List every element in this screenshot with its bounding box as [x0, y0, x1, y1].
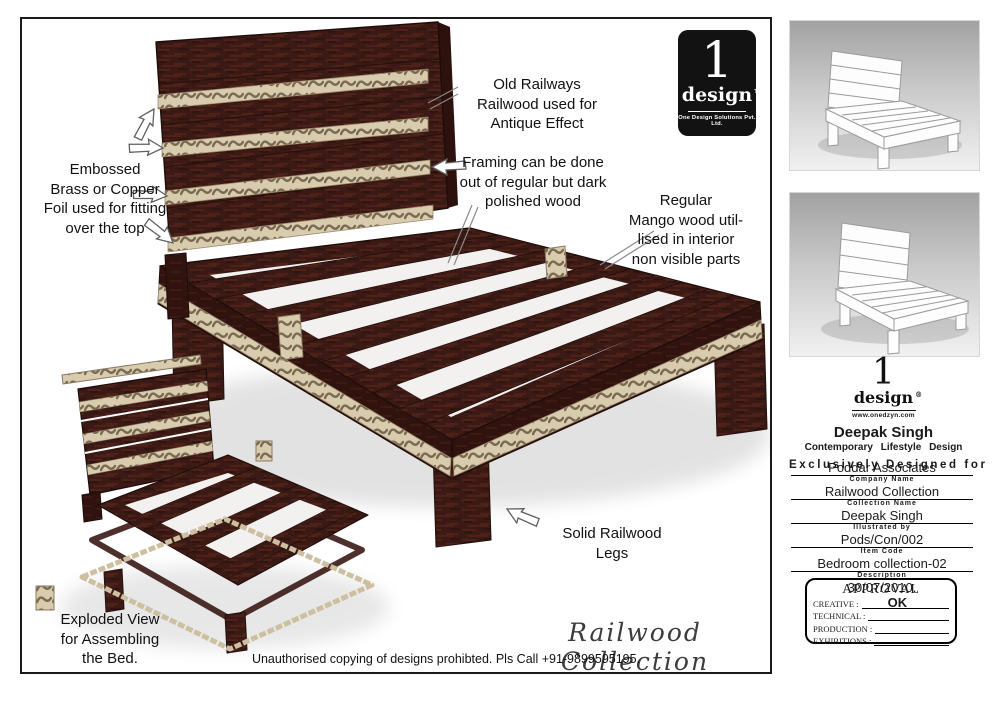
designer-name: Deepak Singh	[789, 424, 978, 441]
designer-tagline: Contemporary Lifestyle Design	[789, 442, 978, 453]
field-value: Pods/Con/002	[791, 533, 973, 548]
approval-row-technical: TECHNICAL :	[813, 611, 949, 621]
signature-line	[874, 636, 949, 646]
logo-divider	[688, 111, 746, 112]
copyright-disclaimer: Unauthorised copying of designs prohibte…	[226, 652, 666, 666]
signature-line	[868, 611, 949, 621]
approval-title: APPROVAL	[813, 581, 949, 596]
annotation-embossed-foil: Embossed Brass or Copper Foil used for f…	[15, 160, 195, 238]
logo-company-line: One Design Solutions Pvt. Ltd.	[678, 115, 756, 127]
annotation-framing: Framing can be done out of regular but d…	[423, 153, 643, 212]
approval-row-exhibitions: EXHIBITIONS :	[813, 636, 949, 646]
logo-numeral: 1	[678, 34, 756, 86]
logo-website: www.onedzyn.com	[789, 412, 978, 419]
collection-title-script: Railwood Collection	[505, 618, 765, 676]
field-value: Railwood Collection	[791, 485, 973, 500]
field-description: Bedroom collection-02 Description	[791, 557, 973, 580]
field-value: Poddar Associates	[791, 461, 973, 476]
registered-symbol: ®	[915, 387, 922, 402]
signature-line	[875, 624, 949, 634]
field-collection: Railwood Collection Collection Name	[791, 485, 973, 508]
field-caption: Collection Name	[791, 500, 973, 508]
field-caption: Item Code	[791, 548, 973, 556]
field-illustrator: Deepak Singh Illustrated by	[791, 509, 973, 532]
sidebar-logo-numeral: 1	[789, 356, 978, 390]
field-caption: Illustrated by	[791, 524, 973, 532]
field-item-code: Pods/Con/002 Item Code	[791, 533, 973, 556]
field-value: Deepak Singh	[791, 509, 973, 524]
sidebar-logo-divider	[852, 410, 916, 411]
field-company: Poddar Associates Company Name	[791, 461, 973, 484]
logo-wordmark: designTM	[682, 86, 752, 104]
approval-ok-mark: OK	[888, 595, 908, 610]
thumbnail-front-render	[790, 21, 979, 170]
approval-row-creative: CREATIVE : OK	[813, 599, 949, 609]
field-caption: Company Name	[791, 476, 973, 484]
one-design-logo-sidebar: 1 design® www.onedzyn.com Deepak Singh C…	[789, 356, 978, 471]
annotation-solid-legs: Solid Railwood Legs	[532, 524, 692, 563]
design-sheet-page: { "main": { "annotations": { "old_railwa…	[0, 0, 992, 701]
one-design-logo-main: 1 designTM One Design Solutions Pvt. Ltd…	[678, 30, 756, 136]
approval-row-production: PRODUCTION :	[813, 624, 949, 634]
annotation-mango-wood: Regular Mango wood util- lised in interi…	[611, 191, 761, 269]
signature-line: OK	[862, 599, 949, 609]
annotation-old-railways: Old Railways Railwood used for Antique E…	[447, 75, 627, 134]
sidebar-logo-wordmark: design®	[854, 390, 913, 405]
annotation-exploded-view: Exploded View for Assembling the Bed.	[30, 610, 190, 669]
field-value: Bedroom collection-02	[791, 557, 973, 572]
approval-box: APPROVAL CREATIVE : OK TECHNICAL : PRODU…	[805, 578, 957, 644]
thumbnail-rear-view	[789, 192, 980, 357]
thumbnail-rear-render	[790, 193, 979, 356]
trademark-symbol: TM	[754, 83, 762, 101]
thumbnail-front-view	[789, 20, 980, 171]
project-info-fields: Poddar Associates Company Name Railwood …	[791, 461, 973, 595]
main-illustration	[20, 17, 770, 672]
